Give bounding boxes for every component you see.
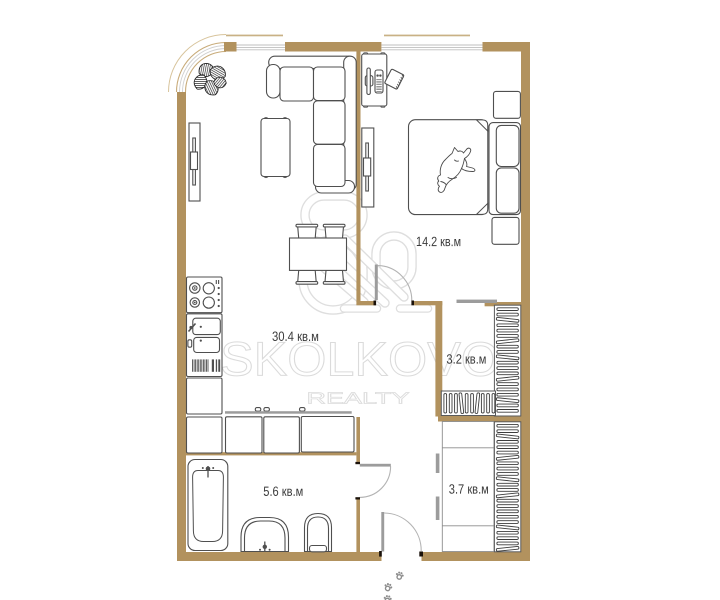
svg-text:30.4 кв.м: 30.4 кв.м — [272, 329, 319, 344]
svg-text:REALTY: REALTY — [306, 390, 410, 407]
svg-text:3.7 кв.м: 3.7 кв.м — [449, 482, 489, 497]
svg-text:14.2 кв.м: 14.2 кв.м — [416, 234, 461, 249]
svg-text:3.2 кв.м: 3.2 кв.м — [446, 352, 486, 367]
svg-text:5.6 кв.м: 5.6 кв.м — [263, 484, 303, 499]
